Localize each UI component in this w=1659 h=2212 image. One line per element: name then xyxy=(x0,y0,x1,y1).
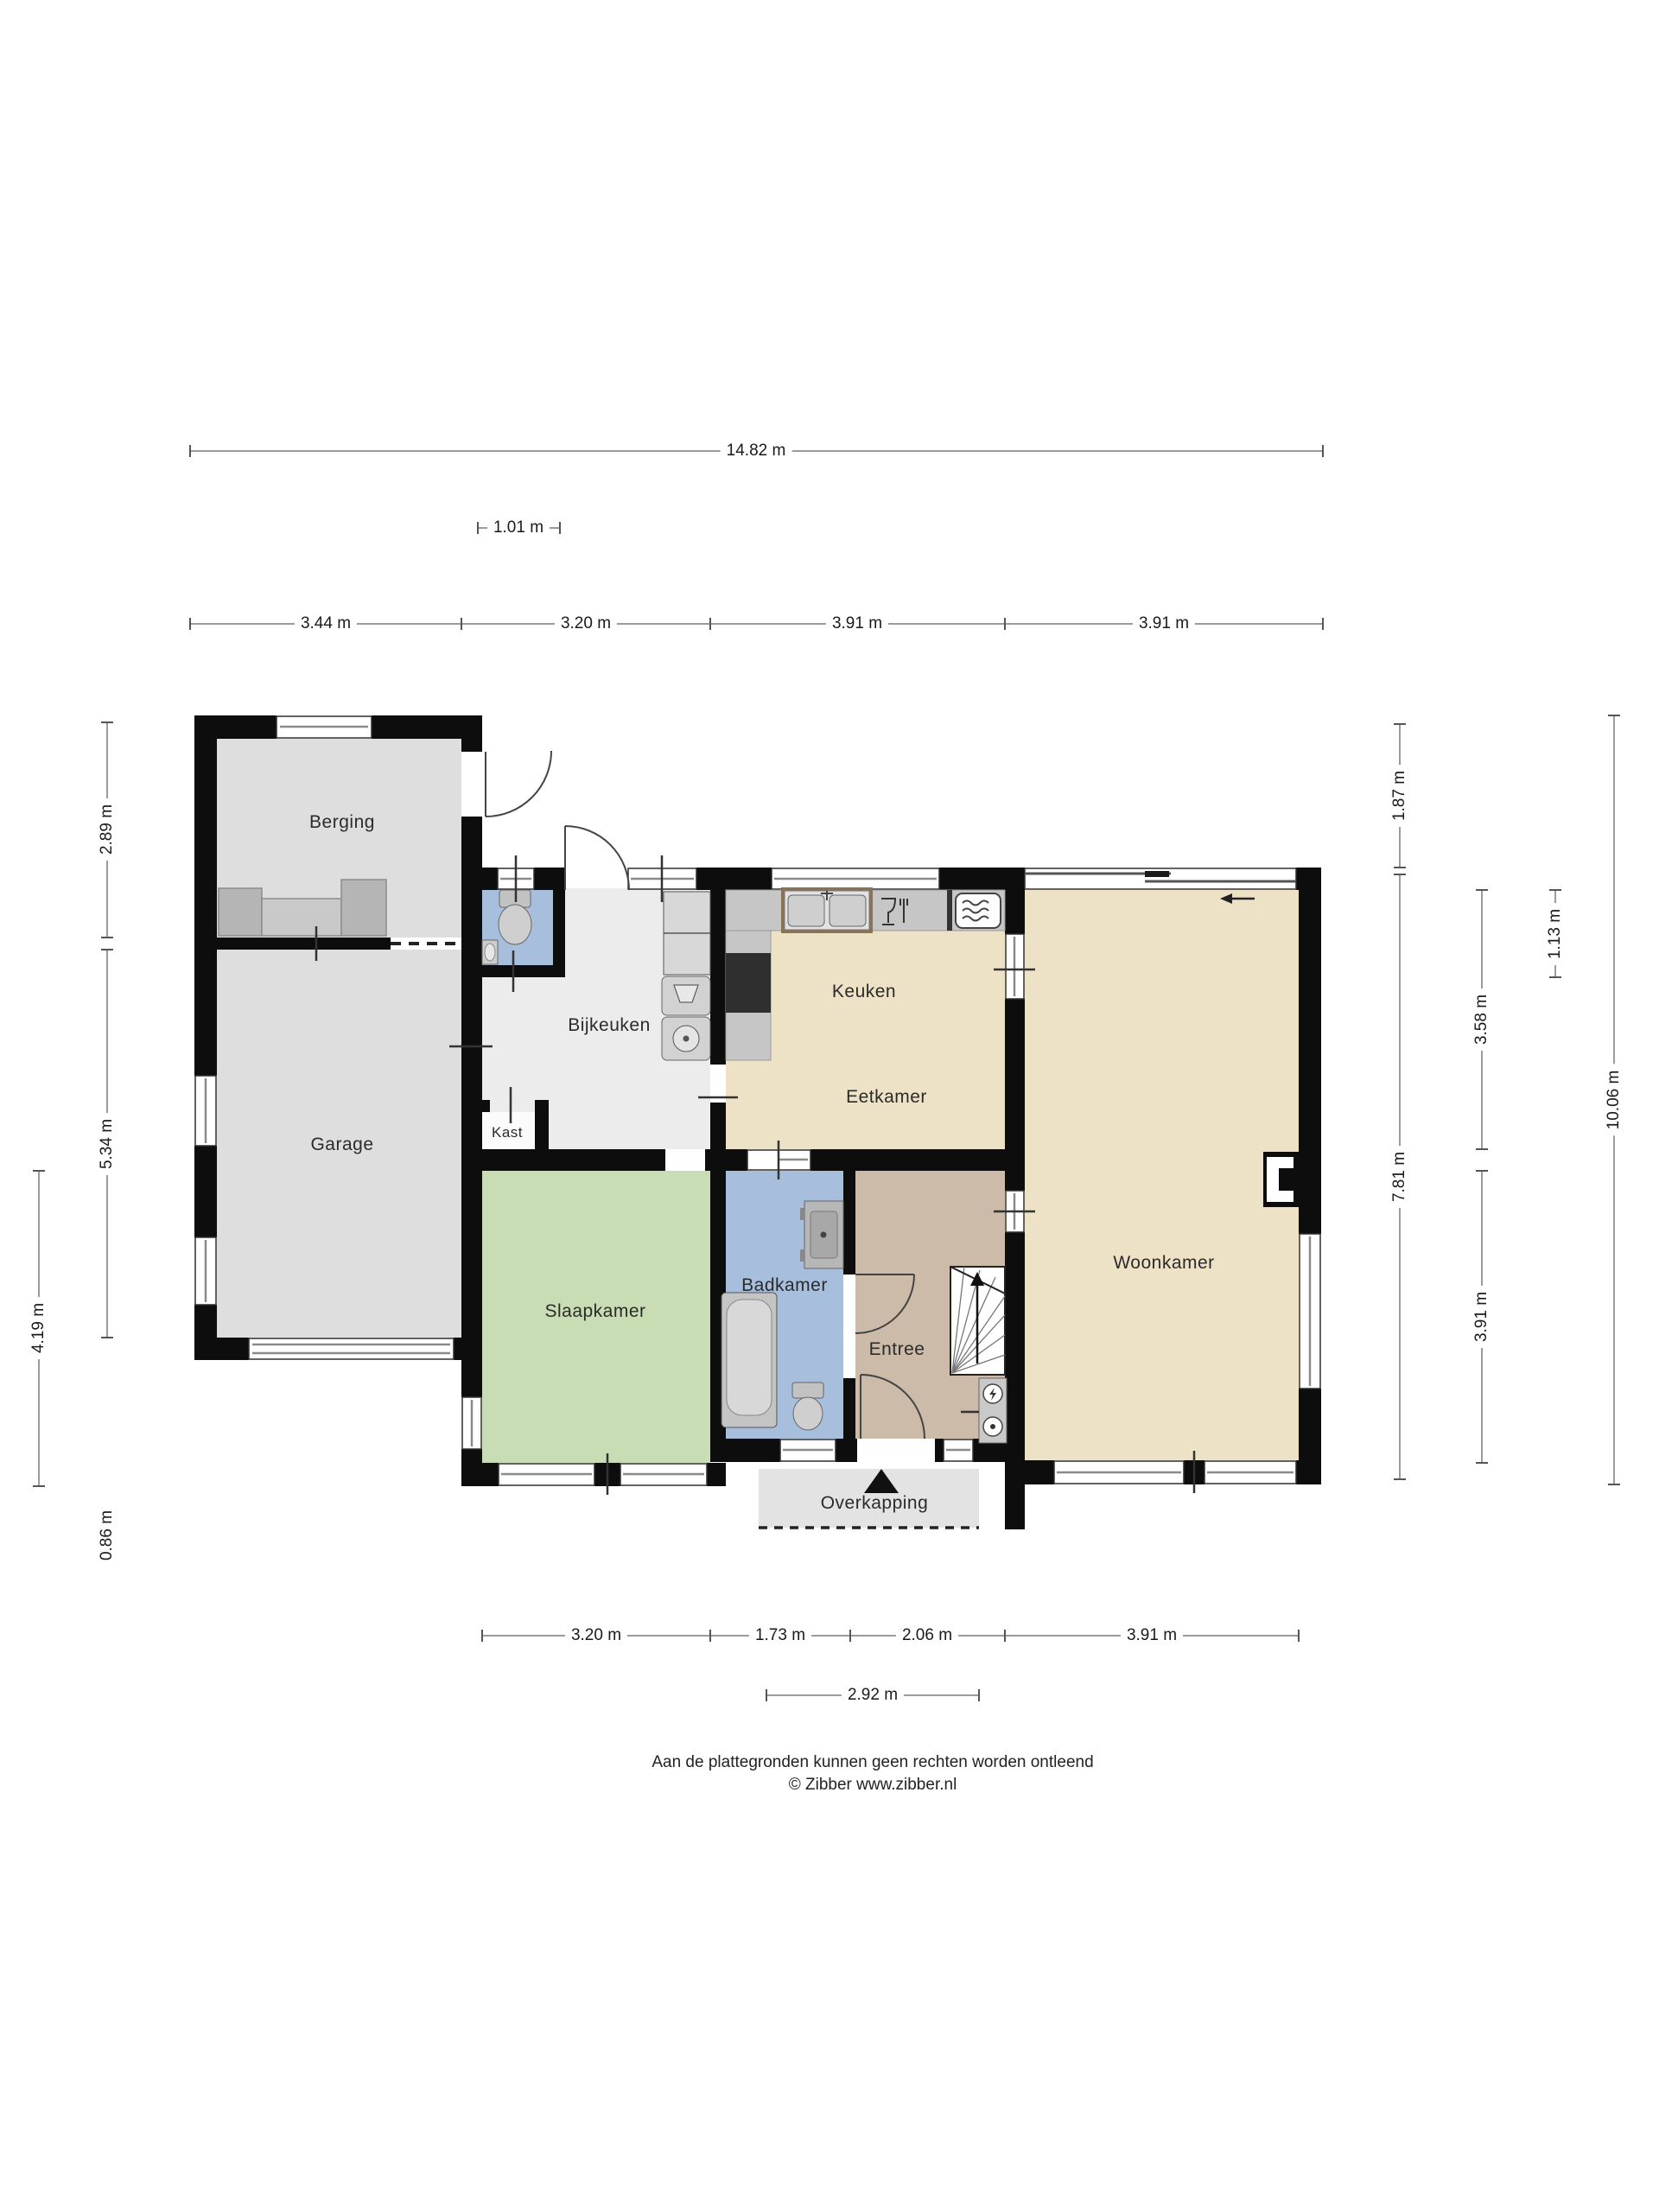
garage-door xyxy=(249,1338,454,1359)
wall xyxy=(1005,1232,1025,1529)
dim-right-4: 3.91 m xyxy=(1472,1286,1491,1348)
dim-top-3: 3.91 m xyxy=(826,614,888,633)
room-label-kast: Kast xyxy=(492,1124,523,1141)
dim-porch-width: 2.92 m xyxy=(842,1686,904,1705)
washer-dot xyxy=(683,1036,690,1042)
wall xyxy=(1005,999,1025,1191)
wall xyxy=(194,1338,249,1360)
vanity-knob xyxy=(800,1208,804,1220)
dim-bottom-1: 3.20 m xyxy=(565,1626,627,1645)
wall xyxy=(461,1171,482,1397)
dim-top-4: 3.91 m xyxy=(1133,614,1195,633)
vanity-knob xyxy=(800,1249,804,1262)
dim-left-4: 0.86 m xyxy=(98,1504,117,1567)
room-woonkamer-floor xyxy=(1025,890,1299,1460)
counter-divider xyxy=(947,890,952,931)
dim-top-offset: 1.01 m xyxy=(487,518,550,537)
wall xyxy=(482,965,565,977)
wall xyxy=(461,868,498,890)
dim-left-1: 2.89 m xyxy=(98,798,117,861)
wall xyxy=(1299,1207,1321,1234)
fireplace xyxy=(1263,1152,1299,1207)
wall xyxy=(1296,1460,1321,1484)
wall xyxy=(836,1439,857,1462)
wall xyxy=(810,1149,1025,1171)
dim-bottom-2: 1.73 m xyxy=(749,1626,811,1645)
wall xyxy=(710,890,726,1065)
footer-disclaimer: Aan de plattegronden kunnen geen rechten… xyxy=(652,1753,1093,1772)
room-label-keuken: Keuken xyxy=(832,982,896,1002)
dim-bottom-4: 3.91 m xyxy=(1121,1626,1183,1645)
workbench-part xyxy=(219,888,262,936)
wall xyxy=(843,1171,855,1274)
workbench-part xyxy=(262,899,341,936)
wall xyxy=(1025,1460,1054,1484)
wall xyxy=(217,938,391,950)
meter-cupboard xyxy=(979,1378,1007,1443)
wall xyxy=(726,1439,780,1462)
wall xyxy=(482,1149,665,1171)
vanity-faucet xyxy=(821,1232,827,1238)
room-label-entree: Entree xyxy=(869,1339,925,1360)
meter-dot xyxy=(990,1424,995,1429)
room-label-badkamer: Badkamer xyxy=(741,1275,828,1296)
room-label-eetkamer: Eetkamer xyxy=(846,1087,927,1108)
wall xyxy=(535,1100,549,1112)
backdoor-bijkeuken-arc xyxy=(565,826,629,890)
footer-copyright: © Zibber www.zibber.nl xyxy=(789,1776,957,1795)
floorplan-page: Berging Garage Bijkeuken Kast Keuken Eet… xyxy=(0,0,1659,2212)
wall xyxy=(1299,868,1321,1152)
wall xyxy=(705,1149,747,1171)
wall xyxy=(696,868,772,890)
wall xyxy=(461,1463,499,1486)
wall xyxy=(482,1100,490,1112)
wall xyxy=(1299,1152,1321,1207)
dim-total-width: 14.82 m xyxy=(721,442,792,461)
dim-left-3: 4.19 m xyxy=(29,1297,48,1359)
dim-top-2: 3.20 m xyxy=(555,614,617,633)
toilet-bowl-icon xyxy=(499,905,531,944)
wall xyxy=(707,1463,726,1486)
dim-right-1: 1.87 m xyxy=(1390,765,1409,827)
wall xyxy=(553,888,565,977)
toilet-bowl-icon xyxy=(793,1397,823,1430)
wall xyxy=(461,715,482,752)
wall xyxy=(843,1378,855,1439)
microwave-oven-icon xyxy=(956,893,1001,928)
room-label-garage: Garage xyxy=(310,1135,373,1155)
toilet-tank-icon xyxy=(792,1382,823,1398)
wall xyxy=(534,868,565,890)
sliding-door-overlap xyxy=(1145,871,1169,877)
dim-right-3: 3.58 m xyxy=(1472,988,1491,1051)
bathtub-inner xyxy=(727,1300,772,1415)
sink-basin xyxy=(485,944,495,961)
room-label-berging: Berging xyxy=(309,812,375,833)
dim-right-5: 1.13 m xyxy=(1546,903,1565,965)
wall xyxy=(194,1146,217,1237)
bijkeuken-appliances xyxy=(662,892,710,1060)
room-label-overkapping: Overkapping xyxy=(821,1493,929,1514)
wall xyxy=(194,734,217,1076)
wall xyxy=(1005,868,1025,934)
wall xyxy=(935,1439,944,1462)
floorplan-drawing xyxy=(0,0,1659,2212)
stairs xyxy=(950,1267,1005,1375)
fireplace-flue xyxy=(1279,1168,1294,1191)
cooktop-icon xyxy=(726,953,771,1013)
workbench-part xyxy=(341,880,386,936)
room-label-slaapkamer: Slaapkamer xyxy=(544,1301,645,1322)
dim-bottom-3: 2.06 m xyxy=(896,1626,958,1645)
wall xyxy=(535,1112,549,1149)
dim-left-2: 5.34 m xyxy=(98,1113,117,1175)
room-label-woonkamer: Woonkamer xyxy=(1113,1253,1214,1274)
room-label-bijkeuken: Bijkeuken xyxy=(568,1015,651,1036)
sink-basin-right xyxy=(829,895,866,926)
backdoor-berging-arc xyxy=(486,751,551,817)
dim-right-6: 10.06 m xyxy=(1605,1065,1624,1136)
dim-top-1: 3.44 m xyxy=(295,614,357,633)
dim-right-2: 7.81 m xyxy=(1390,1146,1409,1208)
sink-basin-left xyxy=(788,895,824,926)
